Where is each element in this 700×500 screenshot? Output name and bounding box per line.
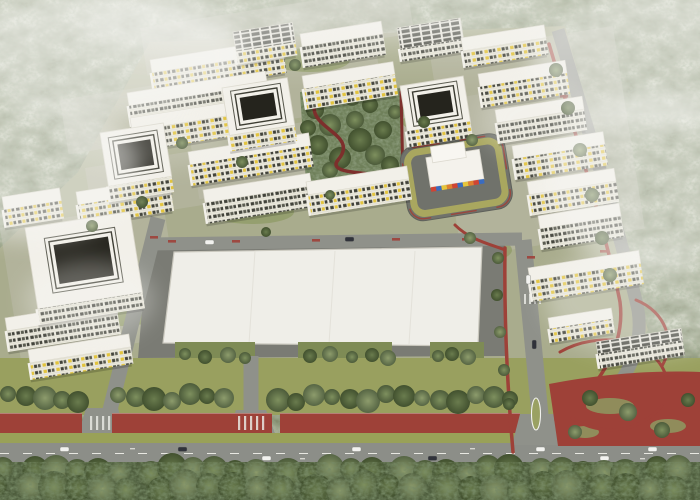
crosswalk-stripe — [256, 416, 258, 430]
kindergarten-stripe — [463, 181, 469, 186]
crosswalk-stripe — [262, 416, 264, 430]
crosswalk-stripe — [108, 416, 110, 430]
street-tree — [142, 387, 166, 411]
masterplan-aerial-render — [0, 0, 700, 500]
red-crossing-mark — [312, 239, 320, 242]
car — [600, 456, 609, 461]
hall-pad-tree — [445, 347, 459, 361]
car — [345, 237, 354, 242]
kindergarten-stripe — [431, 187, 437, 192]
kindergarten-stripe — [452, 183, 458, 188]
kindergarten-stripe — [457, 182, 463, 187]
hall-pad-tree — [460, 349, 476, 365]
roadside-tree — [494, 326, 506, 338]
red-bike-strip — [0, 413, 82, 433]
courtyard-tree — [466, 134, 478, 146]
aerial-render-stage — [0, 0, 700, 500]
street-tree — [67, 391, 89, 413]
street-tree — [163, 392, 181, 410]
hall-pad-tree — [303, 349, 317, 363]
red-bike-strip — [280, 413, 520, 433]
street-tree — [356, 389, 380, 413]
hall-pad-tree — [432, 350, 444, 362]
hall-pad-tree — [365, 348, 379, 362]
car — [536, 447, 545, 452]
street-tree — [393, 385, 415, 407]
kindergarten-stripe — [468, 181, 474, 186]
lane-tick — [640, 458, 645, 459]
red-crossing-mark — [168, 240, 176, 243]
street-tree — [303, 384, 325, 406]
street-tree — [16, 386, 36, 406]
hall-pad-tree — [322, 346, 338, 362]
street-tree — [179, 383, 201, 405]
courtyard-tree — [136, 196, 148, 208]
crosswalk-stripe — [238, 416, 240, 430]
car — [648, 447, 657, 452]
street-tree — [377, 385, 395, 403]
hall-pad-tree — [346, 351, 358, 363]
courtyard-tree — [464, 232, 476, 244]
street-tree — [324, 389, 340, 405]
park-tree — [374, 121, 392, 139]
kindergarten-stripe — [436, 186, 442, 191]
hall-roof — [163, 247, 482, 346]
median-island — [532, 398, 541, 430]
red-crossing-mark — [232, 240, 240, 243]
street-tree — [483, 386, 505, 408]
courtyard-tree — [261, 227, 271, 237]
plaza-tree — [568, 425, 582, 439]
street-tree — [467, 386, 485, 404]
car — [532, 340, 537, 349]
crosswalk-stripe — [524, 294, 526, 304]
lane-tick — [300, 458, 305, 459]
plaza-tree — [654, 422, 670, 438]
park-tree — [346, 111, 364, 129]
fog-patch — [480, 80, 600, 160]
car — [60, 447, 69, 452]
street-tree — [446, 390, 470, 414]
kindergarten-stripe — [441, 185, 447, 190]
roadside-tree — [503, 398, 515, 410]
street-tree — [214, 388, 234, 408]
courtyard-tree — [325, 190, 335, 200]
car — [205, 240, 214, 245]
courtyard-tree — [236, 156, 248, 168]
street-tree — [266, 388, 290, 412]
roadside-tree — [492, 252, 504, 264]
street-tree — [110, 387, 126, 403]
roadside-tree — [491, 289, 503, 301]
plaza-tree — [619, 403, 637, 421]
red-crossing-mark — [150, 236, 158, 239]
crosswalk-stripe — [102, 416, 104, 430]
crosswalk-stripe — [244, 416, 246, 430]
plaza-tree — [681, 393, 695, 407]
crosswalk-stripe — [250, 416, 252, 430]
crosswalk-stripe — [90, 416, 92, 430]
plaza-tree — [582, 390, 598, 406]
lane-tick — [470, 448, 475, 449]
lane-tick — [130, 448, 135, 449]
hall-pad-tree — [179, 348, 191, 360]
car — [352, 447, 361, 452]
car — [526, 275, 531, 284]
street-tree — [0, 386, 16, 402]
bottom-forest-texture — [0, 462, 700, 500]
street-tree — [199, 388, 215, 404]
street-tree — [414, 390, 430, 406]
kindergarten-stripe — [473, 180, 479, 185]
kindergarten-stripe — [479, 179, 485, 184]
car — [428, 456, 437, 461]
street-tree — [287, 393, 305, 411]
car — [178, 447, 187, 452]
kindergarten-stripe — [447, 184, 453, 189]
hall-pad-tree — [380, 350, 396, 366]
red-crossing-mark — [392, 238, 400, 241]
red-bike-strip — [112, 413, 272, 433]
hall-pad-tree — [239, 352, 251, 364]
hall-pad-tree — [220, 347, 236, 363]
car — [262, 456, 271, 461]
red-crossing-mark — [527, 256, 535, 259]
fog-patch — [25, 260, 155, 340]
fog-patch — [55, 112, 235, 168]
courtyard-tree — [418, 116, 430, 128]
crosswalk-stripe — [96, 416, 98, 430]
hall-pad-tree — [198, 350, 212, 364]
roadside-tree — [498, 364, 510, 376]
